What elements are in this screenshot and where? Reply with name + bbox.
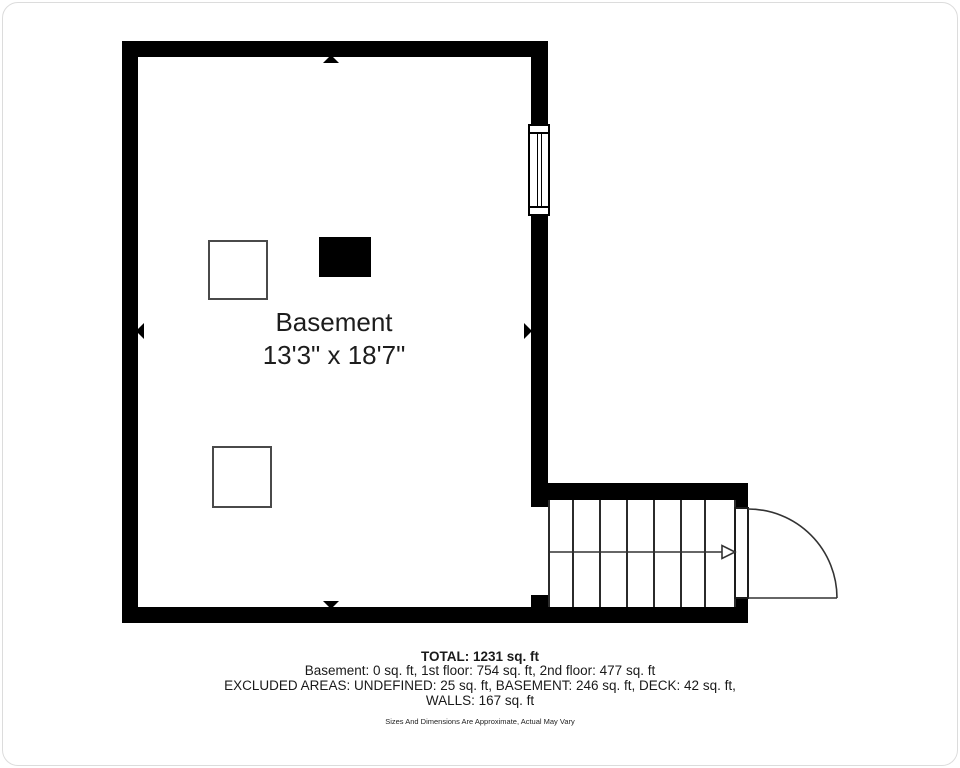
door-swing-arc: [748, 509, 837, 598]
wall-marker-right-icon: [524, 323, 532, 339]
room-label: Basement 13'3" x 18'7": [184, 306, 484, 372]
total-area-text: TOTAL: 1231 sq. ft: [0, 649, 960, 664]
wall-marker-bottom-icon: [323, 601, 339, 609]
area-summary: TOTAL: 1231 sq. ft Basement: 0 sq. ft, 1…: [0, 649, 960, 726]
floorplan-canvas: Basement 13'3" x 18'7" TOTAL: 1231 sq. f…: [0, 0, 960, 768]
wall-marker-top-icon: [323, 55, 339, 63]
room-dimensions: 13'3" x 18'7": [184, 339, 484, 372]
wall-marker-left-icon: [136, 323, 144, 339]
stairs-arrowhead-icon: [722, 546, 735, 559]
room-name: Basement: [184, 306, 484, 339]
floor-breakdown-text: Basement: 0 sq. ft, 1st floor: 754 sq. f…: [0, 664, 960, 679]
excluded-areas-text: EXCLUDED AREAS: UNDEFINED: 25 sq. ft, BA…: [0, 679, 960, 694]
excluded-walls-text: WALLS: 167 sq. ft: [0, 694, 960, 709]
disclaimer-text: Sizes And Dimensions Are Approximate, Ac…: [0, 717, 960, 726]
